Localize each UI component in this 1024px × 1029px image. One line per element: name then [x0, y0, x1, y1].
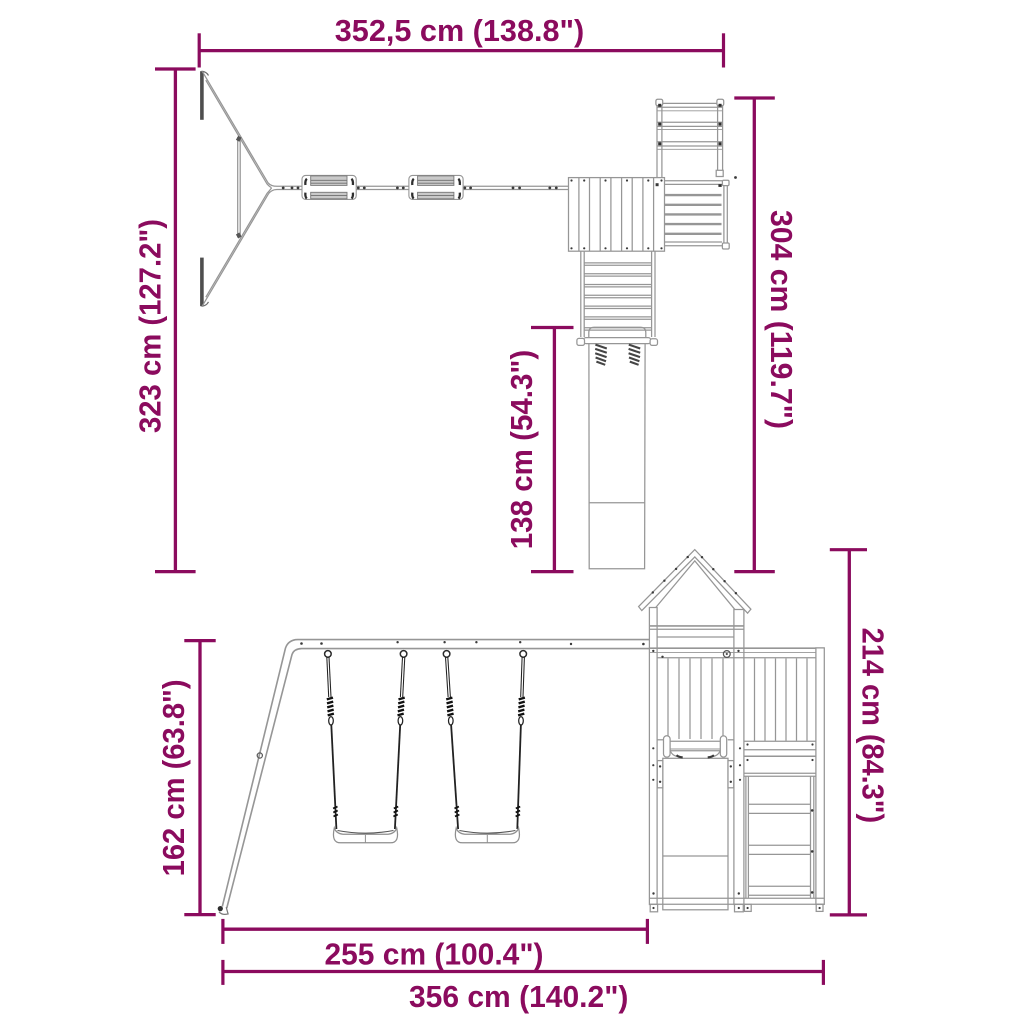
svg-text:138 cm (54.3"): 138 cm (54.3") [504, 350, 539, 550]
svg-text:352,5 cm (138.8"): 352,5 cm (138.8") [335, 13, 585, 48]
svg-text:255 cm (100.4"): 255 cm (100.4") [325, 937, 544, 972]
svg-text:214 cm (84.3"): 214 cm (84.3") [856, 628, 891, 824]
svg-text:323 cm (127.2"): 323 cm (127.2") [133, 219, 168, 433]
svg-text:162 cm (63.8"): 162 cm (63.8") [156, 679, 191, 876]
svg-text:304 cm (119.7"): 304 cm (119.7") [764, 210, 799, 429]
svg-text:356 cm (140.2"): 356 cm (140.2") [409, 979, 629, 1014]
